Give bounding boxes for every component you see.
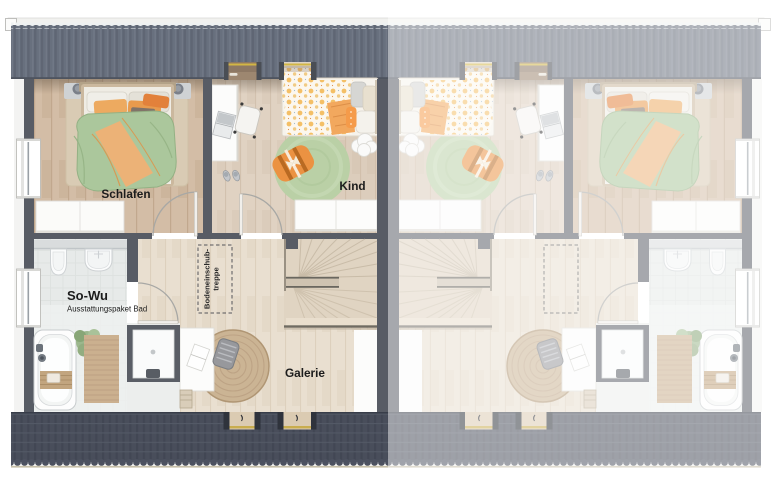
svg-text:Galerie: Galerie xyxy=(285,366,325,380)
svg-text:Ausstattungspaket Bad: Ausstattungspaket Bad xyxy=(67,305,147,314)
svg-text:Schlafen: Schlafen xyxy=(101,187,150,201)
svg-text:treppe: treppe xyxy=(212,267,221,291)
svg-text:Kind: Kind xyxy=(339,179,365,193)
svg-text:So-Wu: So-Wu xyxy=(67,288,108,303)
svg-text:Bodeneinschub-: Bodeneinschub- xyxy=(203,248,212,309)
